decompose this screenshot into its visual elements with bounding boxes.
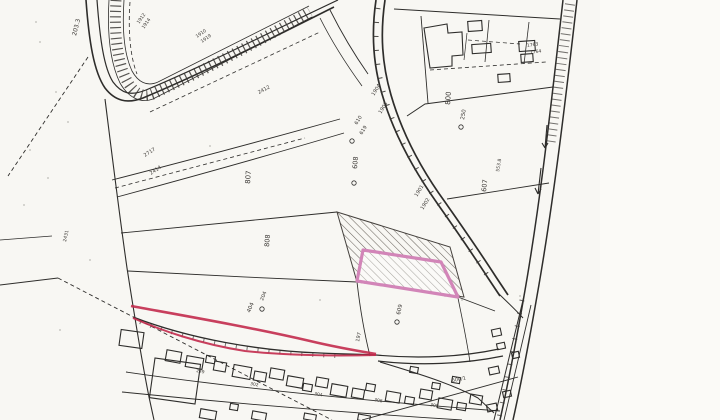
- building-footprint: [253, 371, 266, 382]
- parcel-label: 2414: [149, 165, 163, 177]
- scan-speckle: [461, 299, 463, 301]
- map-line: [97, 0, 338, 93]
- building-footprint: [496, 342, 505, 350]
- scan-speckle: [23, 204, 25, 206]
- map-line: [0, 236, 52, 240]
- scan-speckle: [59, 329, 61, 331]
- building-footprint: [365, 383, 375, 391]
- building-footprint: [491, 328, 501, 337]
- survey-point-symbol: [352, 181, 356, 185]
- building-footprint: [304, 413, 317, 420]
- map-line: [112, 119, 340, 180]
- building-footprint: [251, 411, 266, 420]
- parcel-label: 250: [460, 108, 468, 120]
- parcel-label: 304: [314, 391, 323, 398]
- building-footprint: [330, 384, 348, 398]
- scan-speckle: [89, 259, 91, 261]
- scan-speckle: [29, 149, 31, 151]
- map-line: [108, 0, 312, 101]
- parcel-label: 600/1: [451, 376, 466, 384]
- survey-point-symbol: [459, 125, 463, 129]
- map-line: [497, 292, 523, 318]
- parcel-label: 2717: [143, 147, 157, 159]
- building-footprint: [230, 403, 239, 410]
- survey-point-symbol: [395, 320, 399, 324]
- building-footprint: [213, 361, 226, 372]
- building-footprint: [199, 409, 216, 420]
- map-line: [128, 271, 357, 282]
- map-line: [513, 0, 577, 420]
- scan-speckle: [319, 299, 321, 301]
- parcel-label: 404: [246, 301, 256, 313]
- parcel-label: 302: [250, 381, 259, 388]
- building-footprint: [315, 377, 328, 388]
- parcel-label: 610: [354, 115, 364, 126]
- parcel-label: 608: [351, 156, 360, 169]
- map-line: [447, 183, 549, 199]
- building-footprint: [488, 366, 499, 375]
- map-line: [485, 20, 489, 62]
- parcel-label: 807: [244, 170, 253, 184]
- dashed-boundary-line: [129, 2, 137, 74]
- parcel-labels-layer: 203.319121914191019192412271724148078086…: [62, 12, 542, 409]
- map-line: [458, 297, 495, 311]
- scan-speckle: [519, 295, 521, 297]
- map-line: [320, 18, 362, 86]
- building-footprint: [302, 383, 312, 391]
- roads-layer: [0, 0, 577, 420]
- scan-speckle: [39, 41, 41, 43]
- scan-speckle: [55, 91, 57, 93]
- map-line: [123, 0, 309, 84]
- building-footprint: [119, 329, 144, 348]
- red-annotation-layer: [131, 306, 376, 356]
- parcel-label: 1763: [526, 41, 538, 49]
- building-footprint: [286, 376, 303, 389]
- scan-speckle: [67, 121, 69, 123]
- building-outline: [535, 168, 541, 194]
- parcel-label: 204: [259, 291, 268, 302]
- building-footprint: [498, 74, 511, 83]
- map-line: [394, 9, 560, 19]
- parcel-label: 553.8: [495, 158, 503, 172]
- building-footprint: [469, 394, 482, 405]
- building-footprint: [410, 366, 419, 373]
- dashed-boundary-line: [468, 40, 520, 44]
- parcel-label: 808: [263, 234, 272, 247]
- parcel-label: 249: [196, 368, 205, 375]
- map-line: [357, 282, 370, 356]
- map-line: [133, 317, 376, 355]
- map-line: [0, 278, 58, 285]
- scan-speckle: [47, 177, 49, 179]
- scanned-map-page: Scanned cadastral survey map with highli…: [0, 0, 720, 420]
- building-footprint: [472, 43, 492, 53]
- building-footprint: [419, 389, 432, 400]
- scan-speckle: [209, 145, 211, 147]
- map-line: [105, 99, 154, 420]
- building-footprint: [468, 21, 483, 32]
- parcel-label: 607: [480, 179, 489, 192]
- dashed-boundary-layer: [8, 2, 546, 420]
- parcel-label: 609: [396, 303, 404, 315]
- survey-point-symbol: [350, 139, 354, 143]
- dashed-boundary-line: [150, 32, 320, 112]
- map-line: [458, 298, 470, 362]
- building-outline: [424, 24, 463, 68]
- map-line: [464, 33, 467, 60]
- scan-speckle: [35, 21, 37, 23]
- parcel-label: 1764: [529, 48, 541, 56]
- parcel-label: 800: [444, 91, 453, 105]
- building-footprint: [385, 391, 401, 403]
- map-line: [117, 133, 344, 197]
- map-line: [330, 10, 368, 74]
- dashed-boundary-line: [8, 57, 88, 176]
- parcel-label: 619: [359, 125, 369, 136]
- survey-point-symbol: [260, 307, 264, 311]
- parcel-label: 197: [355, 332, 363, 343]
- building-footprint: [232, 365, 252, 380]
- parcel-label: 1902: [420, 197, 432, 211]
- parcel-label: 2412: [257, 84, 271, 95]
- parcel-label: 1901: [414, 184, 426, 198]
- map-line: [376, 349, 499, 357]
- building-footprint: [351, 388, 364, 399]
- building-footprint: [432, 382, 441, 389]
- cadastral-map: 203.319121914191019192412271724148078086…: [0, 0, 720, 420]
- map-line: [126, 372, 500, 411]
- parcel-label: 203.3: [71, 18, 82, 37]
- building-footprint: [269, 368, 285, 380]
- map-line: [122, 392, 462, 420]
- parcel-label: 306: [374, 397, 383, 404]
- parcel-label: 2431: [62, 230, 70, 243]
- building-footprint: [437, 398, 453, 410]
- map-line: [407, 87, 553, 116]
- building-footprint: [456, 402, 466, 410]
- map-line: [121, 212, 337, 233]
